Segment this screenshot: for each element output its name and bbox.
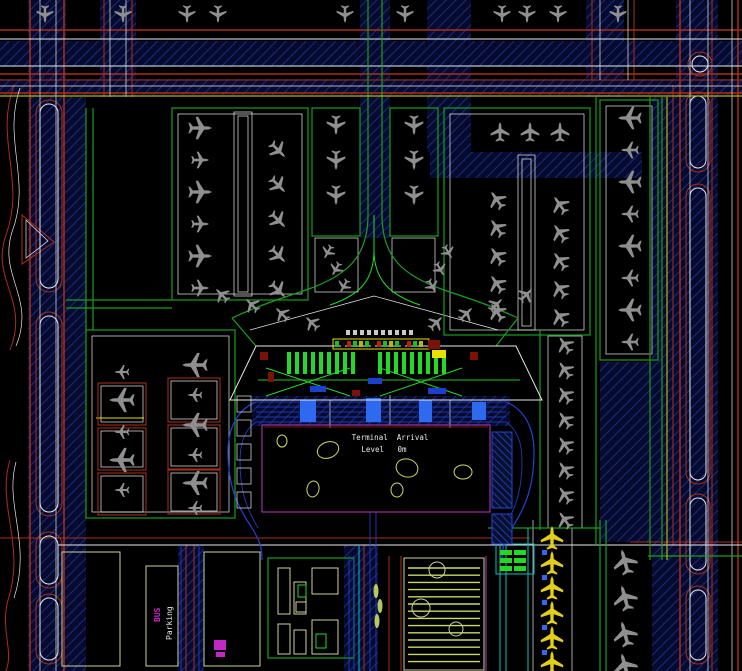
tree-icon	[412, 599, 430, 617]
parking-structure	[492, 514, 512, 544]
strip-block	[419, 341, 423, 347]
strip-block	[347, 341, 351, 347]
airplane-icon	[188, 245, 212, 267]
strip-block	[389, 341, 393, 347]
runway-turn-arc	[5, 460, 14, 671]
airplane-icon	[621, 270, 639, 287]
roof-tick	[374, 330, 378, 335]
airplane-icon	[552, 407, 577, 432]
apron-block	[172, 108, 308, 300]
equipment-stand	[514, 558, 526, 563]
aircraft-stand-box	[168, 378, 220, 422]
landside-building-inner	[316, 634, 326, 648]
pond	[391, 483, 403, 497]
roof-tick	[367, 330, 371, 335]
airplane-icon	[188, 117, 212, 139]
airplane-icon	[552, 507, 577, 532]
terminal-sign-block	[428, 388, 446, 394]
curbside-island	[419, 400, 432, 422]
airplane-icon	[210, 5, 227, 23]
checkin-island-bar	[311, 352, 315, 374]
checkin-island-bar	[426, 352, 430, 374]
airplane-icon	[270, 302, 293, 325]
aircraft-stand-box-inner	[171, 381, 217, 419]
airplane-icon	[618, 107, 642, 129]
airplane-icon	[484, 214, 511, 241]
terminal-core-block	[260, 352, 268, 360]
checkin-island-bar	[335, 352, 339, 374]
pond	[394, 456, 420, 479]
landside-building-inner	[298, 585, 306, 597]
airplane-icon	[182, 353, 208, 377]
tree-icon	[449, 622, 463, 636]
equipment-stand	[500, 558, 512, 563]
arrival-plaza: Terminal Arrival Level 0m	[262, 425, 490, 512]
airplane-icon	[621, 206, 639, 223]
landside-building	[312, 568, 338, 594]
airplane-icon	[438, 242, 457, 262]
terminal-core-block	[268, 372, 274, 382]
strip-block	[341, 341, 345, 347]
checkin-island-bar	[343, 352, 347, 374]
terminal-arrival-label: Terminal Arrival	[352, 433, 429, 442]
pond	[454, 465, 472, 479]
gate-box	[237, 468, 251, 484]
roof-tick	[395, 330, 399, 335]
strip-block	[395, 341, 399, 347]
airplane-icon	[109, 388, 135, 412]
airplane-icon	[115, 365, 130, 379]
airplane-icon	[265, 137, 292, 164]
landside-building	[278, 568, 290, 614]
airplane-icon	[610, 650, 640, 671]
airplane-icon	[300, 311, 323, 334]
airplane-icon	[397, 5, 414, 23]
curbside-island	[300, 400, 316, 422]
terminal-sign-block	[368, 378, 382, 384]
terminal-building	[230, 330, 542, 400]
strip-block	[335, 341, 339, 347]
airplane-icon	[182, 471, 208, 495]
checkin-island-bar	[303, 352, 307, 374]
airplane-icon	[188, 448, 203, 462]
parking-label: Parking	[165, 606, 174, 640]
strip-block	[359, 341, 363, 347]
bus-label: BUS	[153, 607, 162, 622]
roof-tick	[346, 330, 350, 335]
taxilane-strip	[234, 112, 252, 296]
parking-lot	[204, 552, 260, 666]
airplane-icon	[265, 242, 292, 269]
taxilane-strip	[518, 155, 535, 330]
landside-area: BUS Parking	[62, 552, 486, 671]
checkin-island-bar	[378, 352, 382, 374]
aircraft-layer	[37, 5, 642, 671]
airplane-icon	[621, 334, 639, 351]
airplane-icon	[327, 185, 346, 205]
airplane-icon	[484, 270, 511, 297]
equipment-stand	[514, 550, 526, 555]
checkin-island-bar	[351, 352, 355, 374]
strip-block	[383, 341, 387, 347]
airplane-icon	[547, 191, 574, 218]
airplane-icon	[519, 5, 536, 23]
airplane-icon	[552, 432, 577, 457]
airplane-icon	[484, 242, 511, 269]
airplane-icon	[521, 122, 540, 142]
airplane-icon	[547, 247, 574, 274]
airplane-icon	[455, 302, 478, 325]
airplane-icon	[182, 413, 208, 437]
airplane-icon	[265, 207, 292, 234]
roof-tick	[360, 330, 364, 335]
airport-cad-drawing: Terminal Arrival Level 0m BUS Parking	[0, 0, 742, 671]
equipment-stand	[500, 550, 512, 555]
strip-block	[413, 341, 417, 347]
checkin-island-bar	[410, 352, 414, 374]
curbside-island	[472, 402, 486, 420]
terminal-core-block	[352, 390, 360, 396]
airplane-icon	[610, 582, 640, 613]
roof-tick	[388, 330, 392, 335]
airplane-icon	[265, 172, 292, 199]
pond	[315, 439, 341, 462]
airplane-icon	[179, 5, 196, 23]
airplane-icon	[547, 303, 574, 330]
airplane-icon	[430, 259, 449, 279]
airplane-icon	[334, 276, 353, 296]
roof-tick	[409, 330, 413, 335]
airplane-icon	[188, 501, 203, 515]
gate-box	[237, 444, 251, 460]
service-marker	[542, 625, 547, 630]
shrub-icon	[375, 614, 380, 628]
airplane-icon	[547, 219, 574, 246]
airplane-icon	[318, 242, 337, 262]
airplane-icon	[337, 5, 354, 23]
strip-block	[407, 341, 411, 347]
parking-structure	[492, 432, 512, 508]
service-marker	[542, 575, 547, 580]
airplane-icon	[327, 115, 346, 135]
stand-group-box	[548, 336, 582, 528]
airplane-icon	[552, 457, 577, 482]
strip-block	[377, 341, 381, 347]
airplane-icon	[115, 483, 130, 497]
airplane-icon	[405, 185, 424, 205]
equipment-stand	[500, 566, 512, 571]
curbside-island	[366, 398, 381, 422]
landside-building	[296, 602, 306, 612]
terminal-core-block	[428, 340, 440, 349]
airplane-icon	[191, 152, 209, 169]
airplane-icon	[191, 216, 209, 233]
airplane-icon	[405, 115, 424, 135]
annotation-blob	[216, 652, 225, 657]
strip-block	[365, 341, 369, 347]
airplane-icon	[618, 299, 642, 321]
apron-block	[86, 330, 235, 518]
airplane-icon	[552, 357, 577, 382]
landside-building	[294, 630, 306, 654]
terminal-sign-block	[310, 386, 326, 392]
airplane-icon	[115, 425, 130, 439]
airplane-icon	[484, 186, 511, 213]
checkin-island-bar	[394, 352, 398, 374]
annotation-blob	[214, 640, 226, 650]
airplane-icon	[422, 276, 441, 296]
roof-tick	[381, 330, 385, 335]
airplane-icon	[610, 618, 640, 649]
checkin-island-bar	[287, 352, 291, 374]
pond	[277, 435, 287, 447]
checkin-island-bar	[386, 352, 390, 374]
airplane-icon	[491, 122, 510, 142]
terminal-highlight-block	[432, 350, 446, 358]
checkin-island-bar	[327, 352, 331, 374]
strip-block	[371, 341, 375, 347]
checkin-island-bar	[295, 352, 299, 374]
airplane-icon	[541, 526, 563, 550]
terminal-core-block	[470, 352, 478, 360]
service-marker	[542, 550, 547, 555]
checkin-island-bar	[418, 352, 422, 374]
airplane-icon	[210, 283, 233, 306]
airplane-icon	[109, 448, 135, 472]
landside-building-block	[268, 558, 354, 658]
strip-block	[401, 341, 405, 347]
airplane-icon	[188, 181, 212, 203]
strip-block	[353, 341, 357, 347]
airplane-icon	[188, 388, 203, 402]
landside-building	[278, 624, 290, 654]
shrub-icon	[378, 599, 383, 613]
checkin-island-bar	[402, 352, 406, 374]
airplane-icon	[327, 150, 346, 170]
roof-tick	[402, 330, 406, 335]
service-marker	[542, 650, 547, 655]
apron-block	[600, 100, 658, 360]
airplane-icon	[551, 122, 570, 142]
airplane-icon	[618, 235, 642, 257]
pond	[306, 480, 321, 498]
shrub-icon	[374, 584, 379, 598]
roof-tick	[353, 330, 357, 335]
airplane-icon	[552, 382, 577, 407]
checkin-island-bar	[319, 352, 323, 374]
airplane-icon	[494, 5, 511, 23]
level-label: Level 0m	[361, 445, 407, 454]
airplane-icon	[610, 546, 640, 577]
equipment-stand	[514, 566, 526, 571]
airplane-icon	[405, 150, 424, 170]
airplane-icon	[547, 275, 574, 302]
aircraft-stand-box-inner	[171, 428, 217, 466]
airplane-icon	[550, 5, 567, 23]
airplane-icon	[552, 482, 577, 507]
cad-viewport: Terminal Arrival Level 0m BUS Parking	[0, 0, 742, 671]
service-marker	[542, 600, 547, 605]
